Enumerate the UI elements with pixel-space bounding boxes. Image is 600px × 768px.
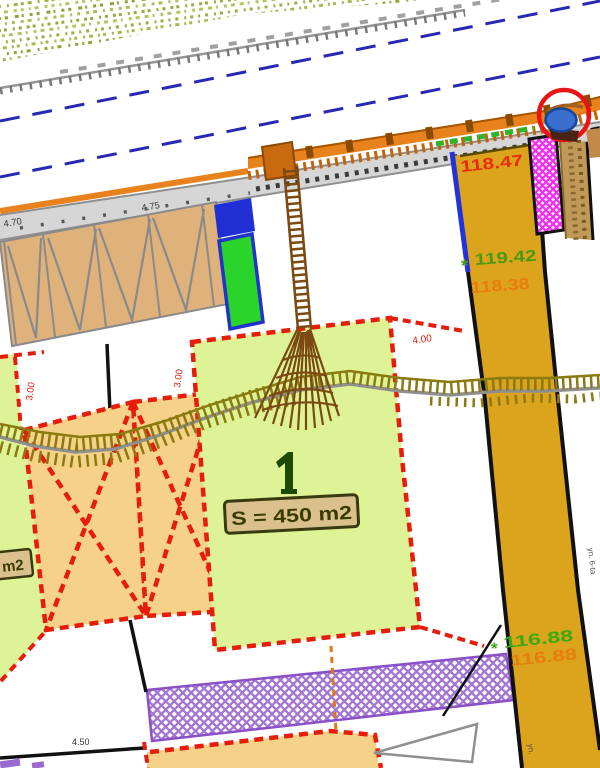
svg-text:*: * [491,639,498,658]
svg-text:m2: m2 [1,557,24,576]
svg-text:4.50: 4.50 [72,737,90,747]
svg-text:*: * [461,256,468,276]
svg-text:yn.: yn. [526,743,536,755]
